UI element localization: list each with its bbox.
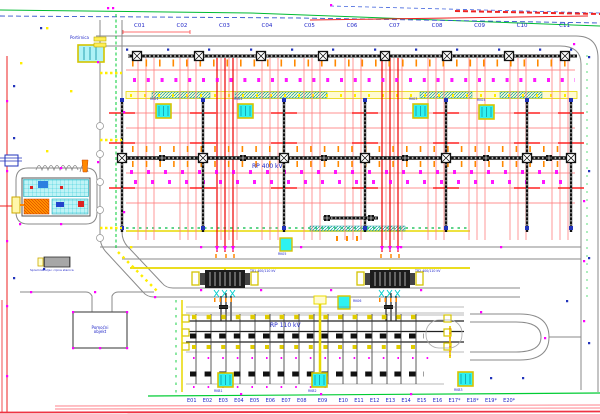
bay-label: E04 [234, 398, 244, 404]
bay-label: C08 [432, 23, 443, 29]
bay-label: E11 [354, 398, 364, 404]
oil-station-label: Spremnik ulja i crpna stanica [30, 269, 74, 272]
kiosk-label: RKB1 [214, 390, 223, 393]
bay-label: E16 [433, 398, 443, 404]
kiosk-label: RK05 [278, 253, 286, 256]
kiosk-label: RKB2 [308, 390, 317, 393]
bay-label: E13 [386, 398, 396, 404]
bay-label: E12 [370, 398, 380, 404]
bay-label: E05 [250, 398, 260, 404]
bay-label: E19* [485, 398, 497, 404]
transformer-label: TR1 400/110 kV [250, 270, 276, 273]
bay-label: E15 [417, 398, 427, 404]
bay-label: C11 [559, 23, 570, 29]
transformer-tr1 [192, 270, 258, 297]
bay-label: E08 [297, 398, 307, 404]
bay-label: C04 [262, 23, 273, 29]
gatehouse [78, 37, 106, 62]
conductors-400kv [109, 58, 584, 252]
bay-label: E06 [266, 398, 276, 404]
kiosk-label: RK01 [150, 98, 158, 101]
bay-label: E18* [467, 398, 479, 404]
site-plan-drawing [0, 0, 600, 414]
transformer-area [130, 238, 470, 321]
bay-label: C01 [134, 23, 145, 29]
bay-label: C03 [219, 23, 230, 29]
gatehouse-label: Portirnica [70, 36, 89, 40]
aux-building-label: Pomoćni objekt [73, 326, 127, 334]
bay-label: E09 [318, 398, 328, 404]
kiosk-label: RK04 [477, 99, 485, 102]
bay-label: E03 [218, 398, 228, 404]
bay-label: E20* [503, 398, 515, 404]
bay-label: E10 [338, 398, 348, 404]
gate-barrier [94, 37, 106, 41]
bay-label: E17* [449, 398, 461, 404]
control-building [0, 155, 90, 216]
rp110-area-label: RP 110 kV [270, 323, 301, 329]
kiosk-label: RKB3 [454, 389, 463, 392]
bottom-bay-labels: E01E02E03E04E05E06E07E08E09E10E11E12E13E… [187, 398, 515, 404]
relay-kiosks-400 [156, 104, 494, 119]
bay-label: E07 [281, 398, 291, 404]
bay-label: C06 [347, 23, 358, 29]
substation-site-plan: C01C02C03C04C05C06C07C08C09C10C11 E01E02… [0, 0, 600, 414]
bay-label: E01 [187, 398, 197, 404]
kiosk-label: RK06 [353, 300, 361, 303]
kiosk-label: RK02 [234, 98, 242, 101]
bay-label: E02 [203, 398, 213, 404]
bay-label: C05 [304, 23, 315, 29]
transformer-label: TR2 400/110 kV [415, 270, 441, 273]
kiosk-label: RK03 [409, 98, 417, 101]
top-bay-labels: C01C02C03C04C05C06C07C08C09C10C11 [134, 23, 570, 29]
bay-label: C09 [474, 23, 485, 29]
relay-kiosks-110 [218, 372, 473, 387]
disconnector-rows-400 [130, 63, 575, 182]
oil-station [38, 257, 70, 267]
transformer-tr2 [357, 270, 423, 297]
rp400-area-label: RP 400 kV [252, 164, 283, 170]
bay-label: C02 [177, 23, 188, 29]
bay-label: C07 [389, 23, 400, 29]
bay-label: E14 [401, 398, 411, 404]
dimension-line [123, 30, 190, 34]
bay-label: C10 [517, 23, 528, 29]
